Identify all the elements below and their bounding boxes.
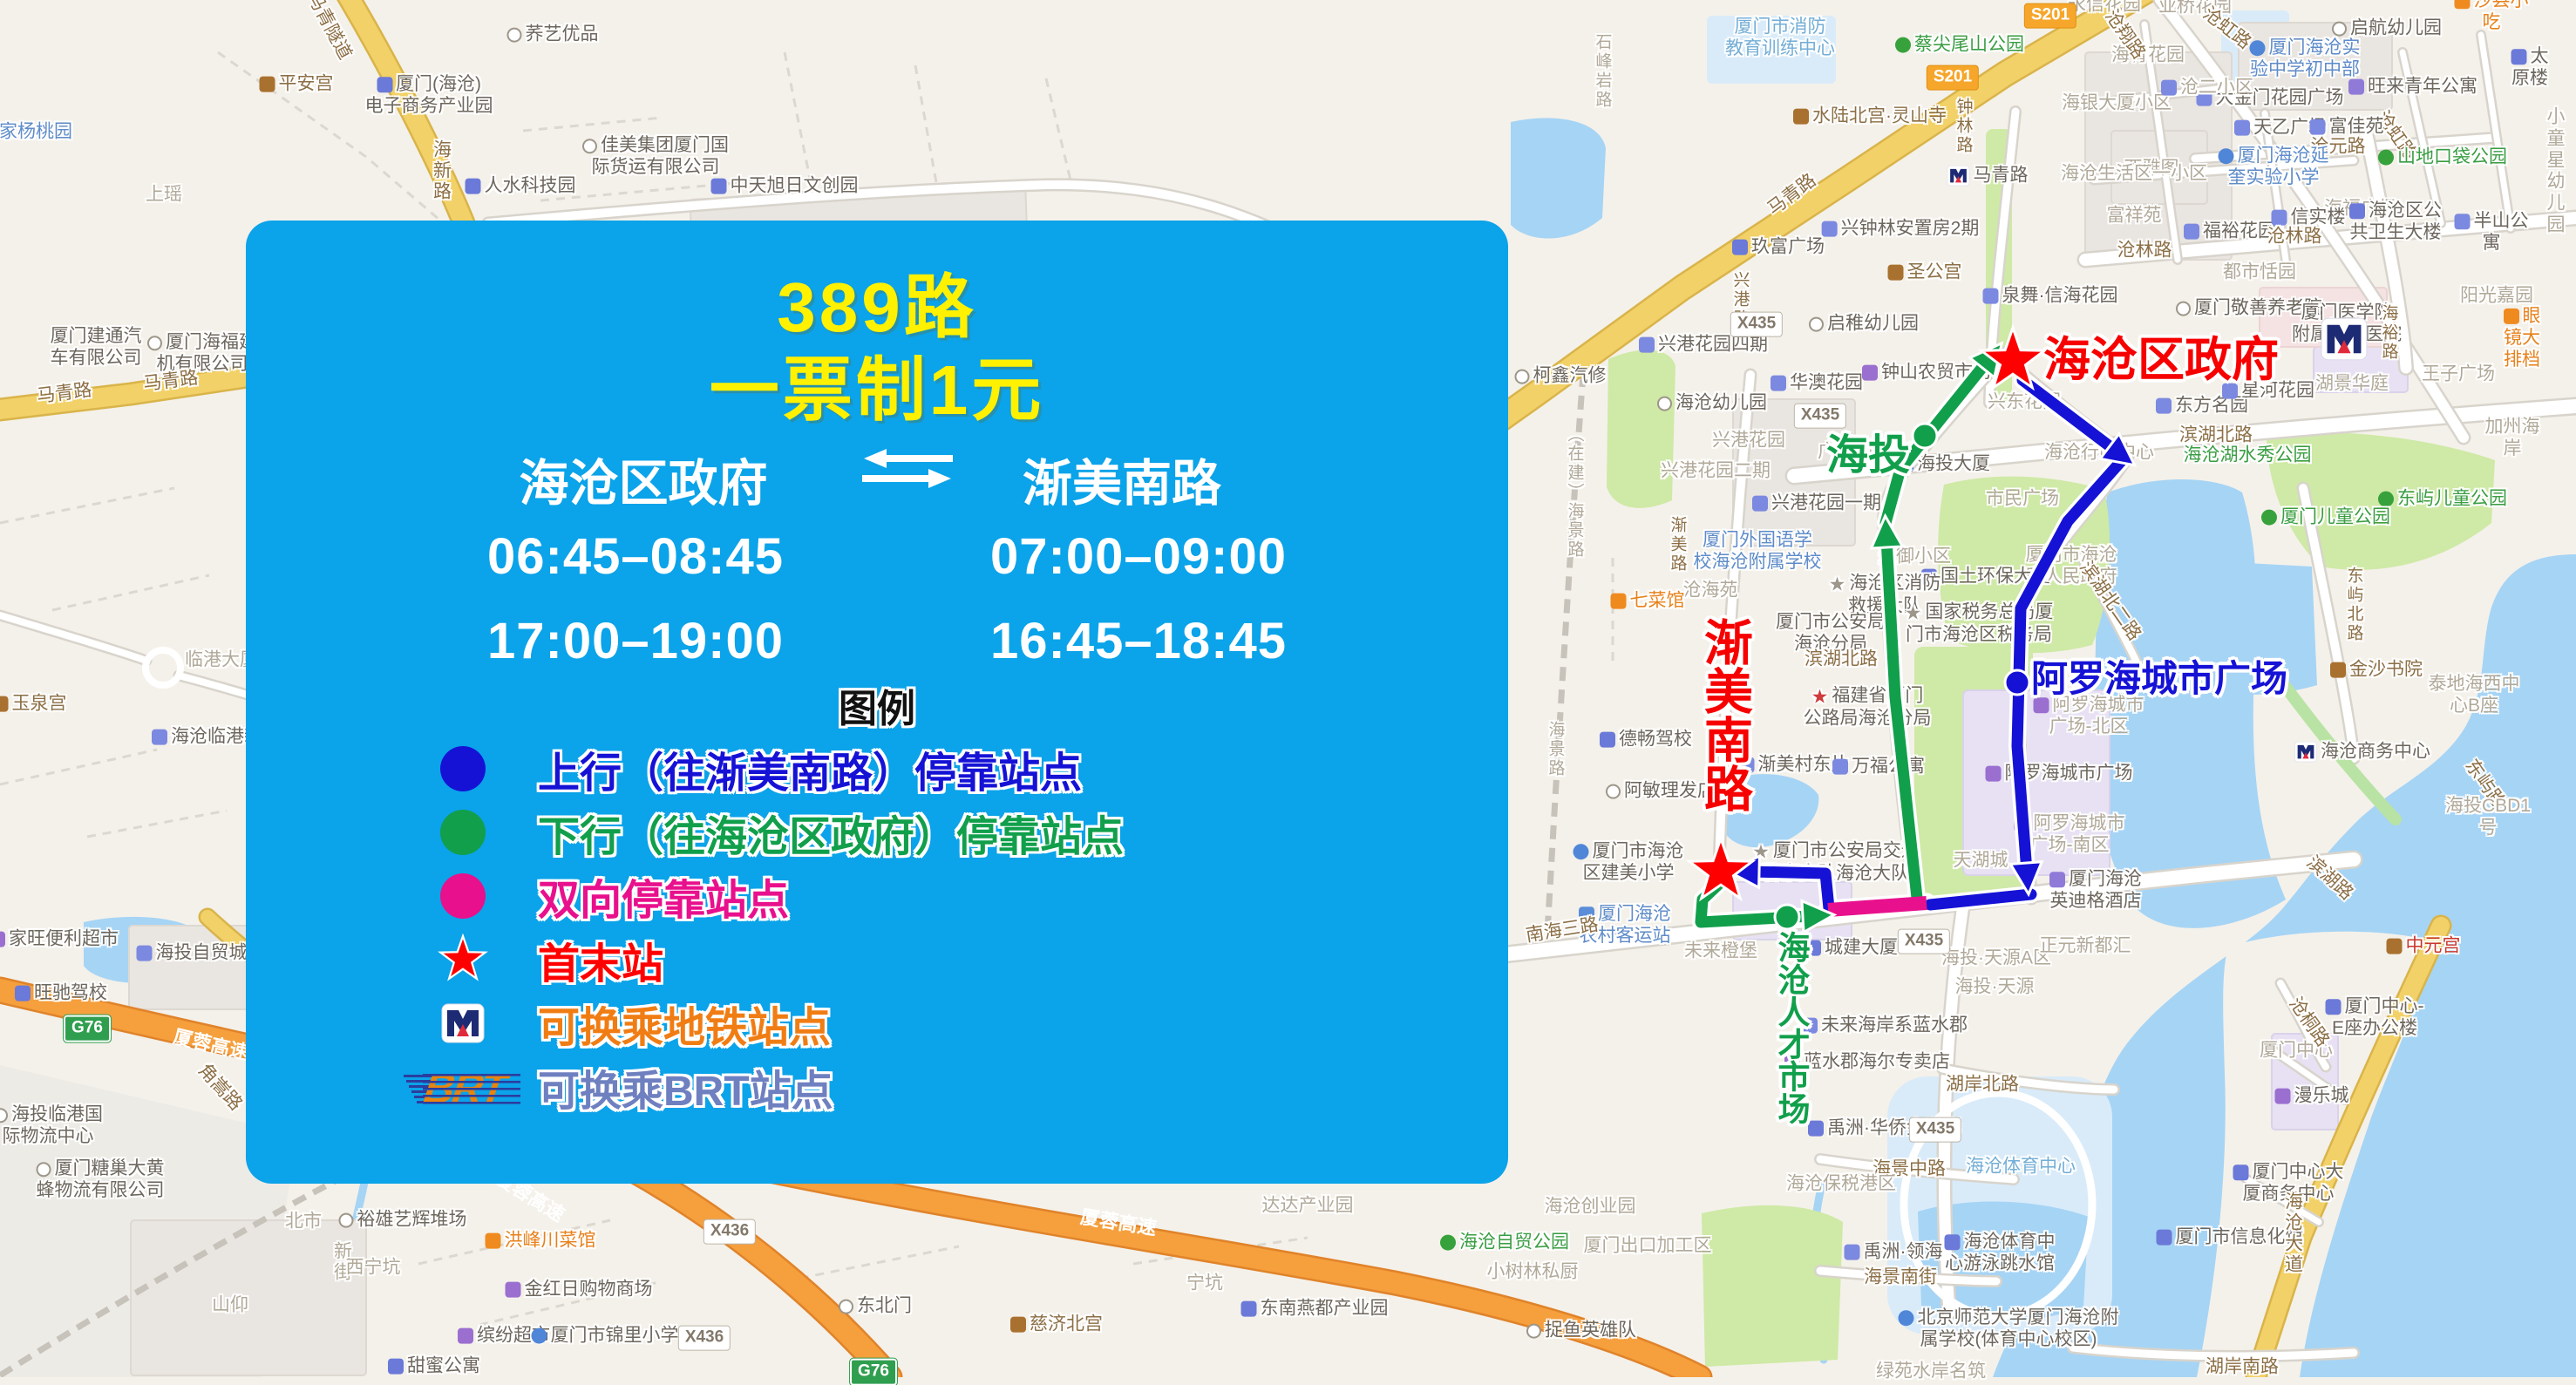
right-terminus: 渐美南路 xyxy=(1023,444,1221,515)
legend-row: BRT可换乘BRT站点 xyxy=(246,1055,1508,1118)
legend-dot-icon xyxy=(398,864,528,927)
annotation-rencai-market: 海沧人才市场 xyxy=(1773,931,1808,1124)
legend-label: 上行（往渐美南路）停靠站点 xyxy=(538,738,1082,799)
annotation-haicang-gov: 海沧区政府 xyxy=(2043,335,2279,385)
legend-label: 双向停靠站点 xyxy=(538,866,789,927)
fare-line: 一票制1元 xyxy=(246,334,1508,435)
metro-logo-icon xyxy=(441,1003,485,1043)
legend-row: 首末站 xyxy=(246,927,1508,991)
brt-logo-icon: BRT xyxy=(402,1063,524,1111)
time-left-am: 06:45–08:45 xyxy=(487,527,784,586)
legend-row: 可换乘地铁站点 xyxy=(246,991,1508,1055)
legend-label: 可换乘BRT站点 xyxy=(538,1056,833,1117)
legend-brt-icon: BRT xyxy=(398,1055,528,1118)
legend-dot-icon xyxy=(398,800,528,864)
time-left-pm: 17:00–19:00 xyxy=(487,612,784,670)
annotation-haitou: 海投 xyxy=(1826,433,1910,479)
legend-star-icon xyxy=(398,927,528,991)
metro-transfer-badge xyxy=(2321,317,2368,361)
legend-row: 上行（往渐美南路）停靠站点 xyxy=(246,737,1508,800)
time-right-am: 07:00–09:00 xyxy=(990,527,1287,586)
legend-label: 下行（往海沧区政府）停靠站点 xyxy=(538,802,1124,863)
legend-metro-icon xyxy=(398,991,528,1055)
legend-row: 下行（往海沧区政府）停靠站点 xyxy=(246,800,1508,864)
metro-logo-icon xyxy=(2321,317,2368,361)
legend-label: 首末站 xyxy=(538,929,663,990)
legend: 上行（往渐美南路）停靠站点下行（往海沧区政府）停靠站点双向停靠站点首末站可换乘地… xyxy=(246,737,1508,1118)
info-panel: 389路 一票制1元 海沧区政府 渐美南路 06:45–08:45 07:00–… xyxy=(246,221,1508,1184)
annotation-jianmei-south-rd: 渐美南路 xyxy=(1698,617,1750,812)
legend-title: 图例 xyxy=(246,677,1508,733)
left-terminus: 海沧区政府 xyxy=(520,444,768,515)
swap-arrows-icon xyxy=(855,445,960,491)
time-right-pm: 16:45–18:45 xyxy=(990,612,1287,670)
legend-row: 双向停靠站点 xyxy=(246,864,1508,927)
legend-dot-icon xyxy=(398,737,528,800)
annotation-aluohai-plaza: 阿罗海城市广场 xyxy=(2031,659,2287,698)
legend-label: 可换乘地铁站点 xyxy=(538,993,831,1054)
